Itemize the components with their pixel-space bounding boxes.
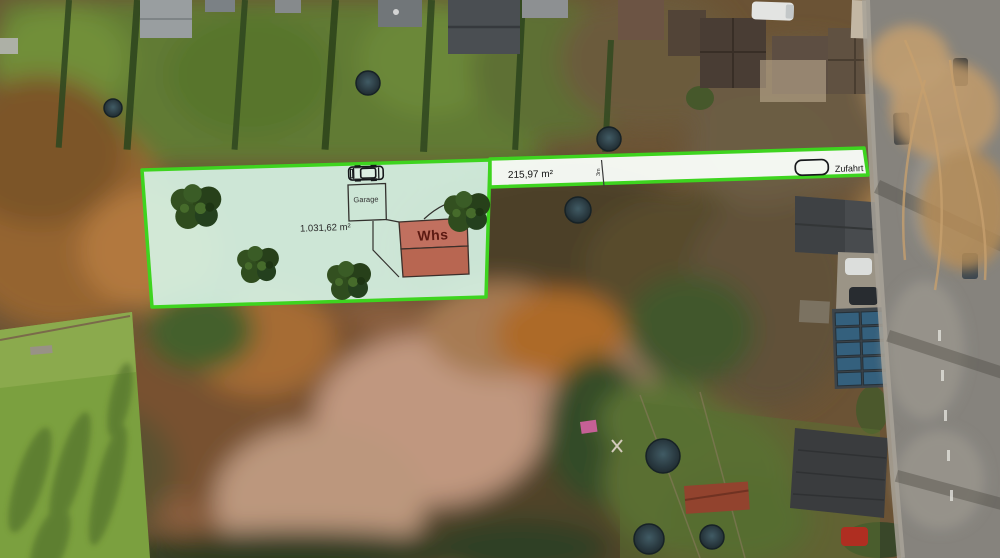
garage-label: Garage — [353, 195, 378, 205]
tree-icon — [327, 261, 371, 300]
zufahrt-label: Zufahrt — [835, 163, 864, 174]
access-strip-boundary — [490, 148, 868, 187]
house-footprint-bottom — [401, 246, 469, 277]
aerial-site-plan-image: 3m Whs Garage 1.031,62 m² 215,97 m² Zufa… — [0, 0, 1000, 558]
tree-icon — [237, 246, 279, 283]
car-top-icon — [348, 165, 383, 182]
strip-width-label: 3m — [596, 168, 602, 176]
strip-area-label: 215,97 m² — [508, 169, 554, 181]
site-plan-overlay: 3m Whs Garage 1.031,62 m² 215,97 m² Zufa… — [0, 0, 1000, 558]
tree-icon — [171, 184, 222, 229]
house-label: Whs — [417, 226, 449, 244]
tree-icon — [444, 191, 490, 232]
plot-area-label: 1.031,62 m² — [300, 222, 351, 235]
